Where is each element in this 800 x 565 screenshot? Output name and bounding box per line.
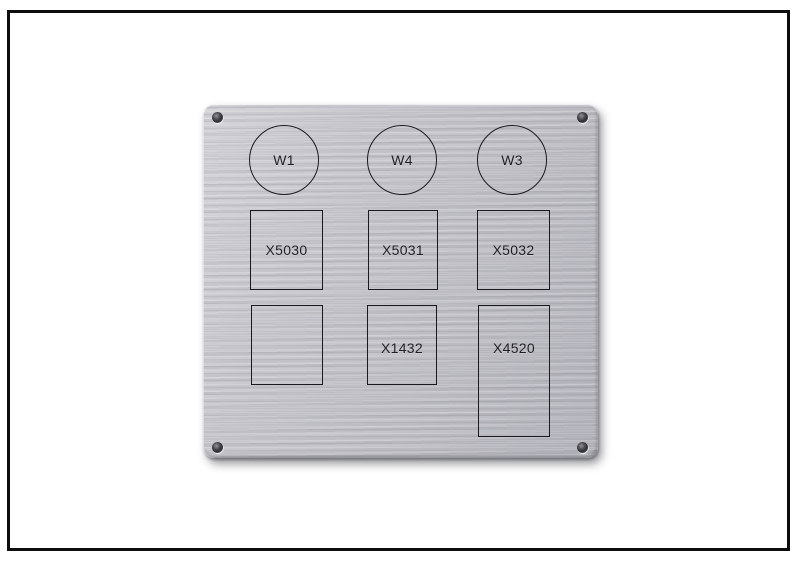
circle-label-w1: W1: [273, 152, 295, 168]
box-label-x5030: X5030: [266, 242, 308, 258]
box-label-x5031: X5031: [382, 242, 424, 258]
engraved-box-x4520: X4520: [478, 305, 550, 437]
engraved-circle-w4: W4: [367, 125, 437, 195]
screw-hole-top-right-icon: [577, 112, 588, 123]
circle-label-w4: W4: [391, 152, 413, 168]
engraved-box-x1432: X1432: [367, 305, 437, 385]
engraved-box-x5030: X5030: [250, 210, 323, 290]
engraved-circle-w3: W3: [477, 125, 547, 195]
engraved-box-x5032: X5032: [477, 210, 550, 290]
photo-canvas: W1 W4 W3 X5030 X5031 X5032 X1432 X4520: [0, 0, 800, 565]
screw-hole-bottom-right-icon: [577, 442, 588, 453]
engraved-circle-w1: W1: [249, 125, 319, 195]
metal-panel: W1 W4 W3 X5030 X5031 X5032 X1432 X4520: [203, 104, 598, 458]
box-label-x5032: X5032: [493, 242, 535, 258]
engraved-box-empty: [251, 305, 323, 385]
screw-hole-top-left-icon: [212, 112, 223, 123]
box-label-x1432: X1432: [381, 340, 423, 356]
screw-hole-bottom-left-icon: [212, 442, 223, 453]
engraved-box-x5031: X5031: [368, 210, 438, 290]
circle-label-w3: W3: [501, 152, 523, 168]
box-label-x4520: X4520: [493, 340, 535, 356]
